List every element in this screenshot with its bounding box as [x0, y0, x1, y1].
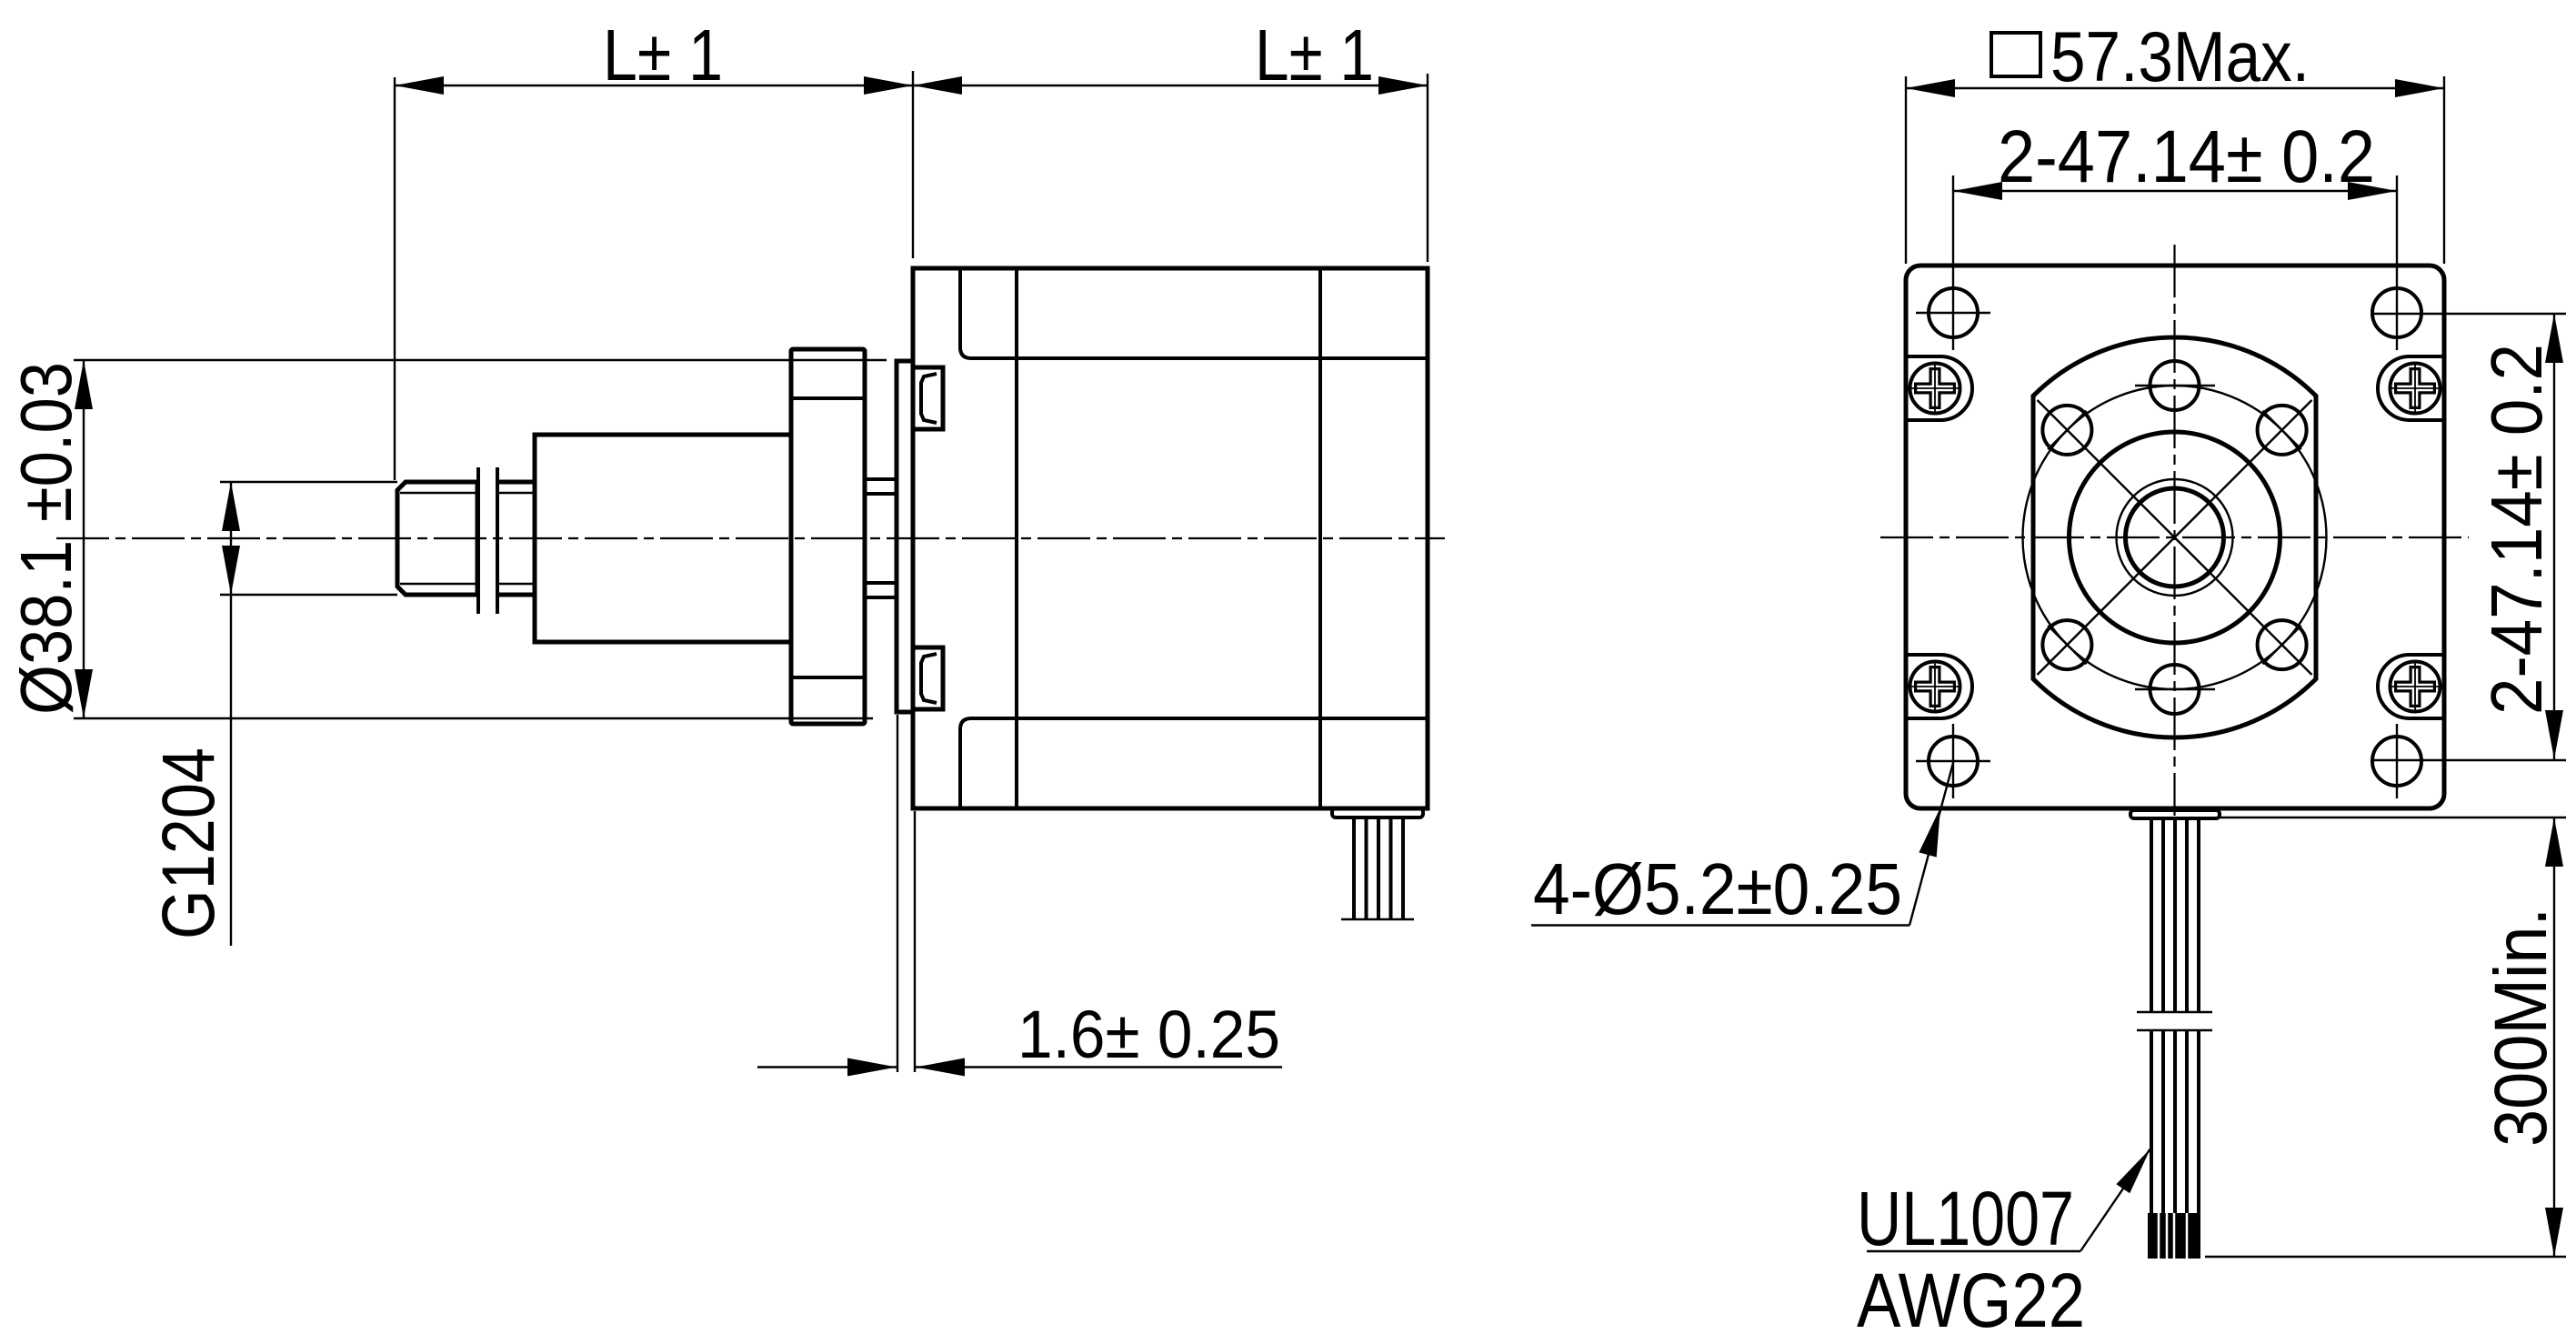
svg-text:L± 1: L± 1 [1255, 15, 1374, 95]
svg-text:2-47.14± 0.2: 2-47.14± 0.2 [2476, 344, 2557, 715]
svg-text:300Min.: 300Min. [2480, 908, 2562, 1147]
svg-text:AWG22: AWG22 [1857, 1258, 2085, 1343]
svg-text:1.6± 0.25: 1.6± 0.25 [1017, 997, 1280, 1072]
svg-text:4-Ø5.2±0.25: 4-Ø5.2±0.25 [1533, 848, 1902, 929]
svg-text:2-47.14± 0.2: 2-47.14± 0.2 [1998, 115, 2375, 198]
svg-text:57.3Max.: 57.3Max. [2050, 16, 2310, 96]
svg-text:G1204: G1204 [147, 747, 230, 939]
svg-text:Ø38.1 ±0.03: Ø38.1 ±0.03 [5, 362, 86, 715]
svg-text:UL1007: UL1007 [1857, 1176, 2074, 1261]
svg-text:L± 1: L± 1 [603, 15, 723, 95]
